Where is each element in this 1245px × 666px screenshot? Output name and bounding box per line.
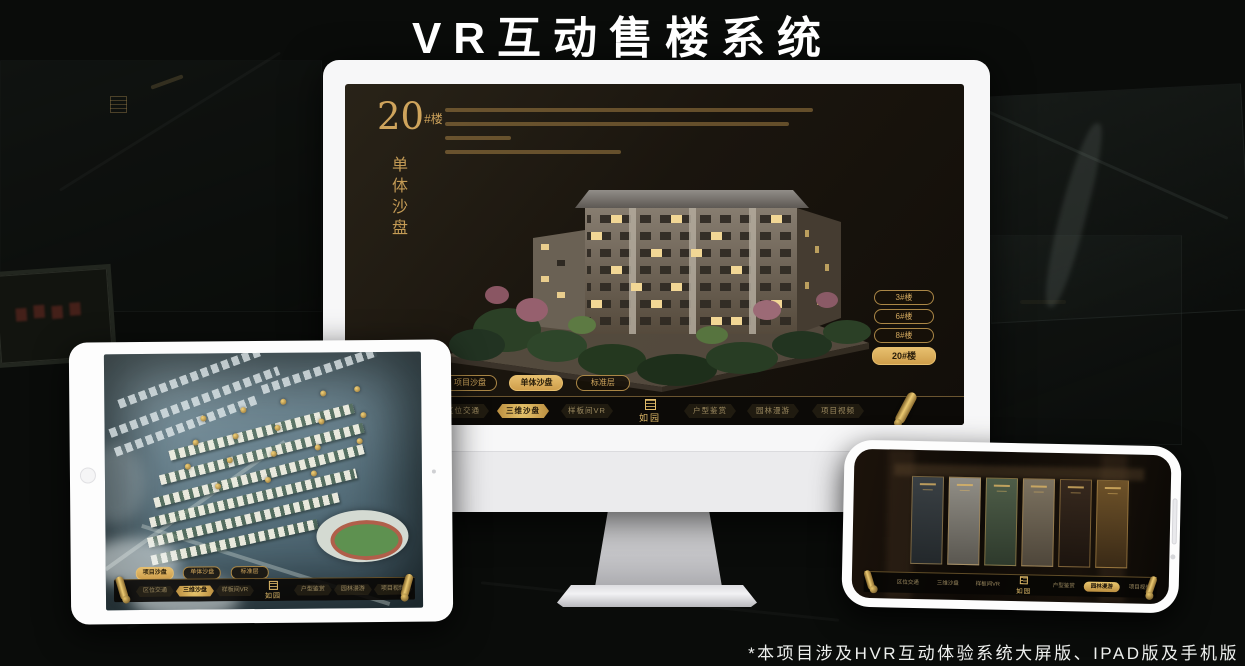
brand-logo-icon <box>645 399 656 410</box>
background-map-label <box>1020 300 1066 304</box>
footnote-text: *本项目涉及HVR互动体验系统大屏版、IPAD版及手机版 <box>748 639 1239 664</box>
monitor-stand-neck <box>595 512 722 587</box>
building-marker[interactable] <box>318 418 324 424</box>
building-heading: 20#楼 <box>377 98 443 136</box>
nav-item-showroom-vr[interactable]: 样板间VR <box>561 404 613 418</box>
monitor-stand-base <box>557 585 757 607</box>
tab-single-sandtable[interactable]: 单体沙盘 <box>509 375 563 391</box>
building-marker[interactable] <box>265 477 271 483</box>
nav-item-showroom-vr[interactable]: 样板间VR <box>970 579 1006 590</box>
scroll-icon[interactable] <box>115 576 129 601</box>
nav-item-floorplans[interactable]: 户型鉴赏 <box>684 404 736 418</box>
phone-camera-icon <box>1170 554 1175 559</box>
gallery-card[interactable] <box>947 477 981 566</box>
floor-button[interactable]: 3#楼 <box>874 290 934 305</box>
nav-item-sandtable[interactable]: 三维沙盘 <box>930 578 966 589</box>
building-marker[interactable] <box>357 438 363 444</box>
building-number: 20 <box>377 95 424 138</box>
brand-logo: 如园 <box>624 399 676 424</box>
building-marker[interactable] <box>200 415 206 421</box>
building-3d-model <box>437 160 877 392</box>
brand-logo-icon <box>268 581 277 590</box>
phone-screen: 区位交通 三维沙盘 样板间VR 如园 户型鉴赏 园林漫游 项目视频 <box>851 449 1171 605</box>
building-marker[interactable] <box>227 457 233 463</box>
gallery-card[interactable] <box>984 477 1018 566</box>
building-marker[interactable] <box>193 440 199 446</box>
brand-logo-text: 如园 <box>265 593 281 600</box>
nav-item-garden-tour[interactable]: 园林漫游 <box>1084 582 1120 593</box>
phone-side-slot <box>1172 498 1178 544</box>
background-gold-emblem <box>110 96 127 113</box>
stadium <box>316 510 408 563</box>
brand-logo-icon <box>1020 576 1028 584</box>
tablet-mode-tab-group: 项目沙盘 单体沙盘 标准层 <box>136 560 274 580</box>
building-marker[interactable] <box>311 471 317 477</box>
intro-paragraph-placeholder <box>445 108 813 164</box>
gallery-card[interactable] <box>1095 480 1129 569</box>
scroll-icon[interactable] <box>894 391 919 425</box>
building-unit: #楼 <box>424 112 443 126</box>
nav-item-location[interactable]: 区位交通 <box>890 577 926 588</box>
poster-canvas: VR互动售楼系统 20#楼 单体沙盘 <box>0 0 1245 666</box>
gallery-card[interactable] <box>1058 479 1092 568</box>
building-marker[interactable] <box>360 412 366 418</box>
nav-item-showroom-vr[interactable]: 样板间VR <box>216 585 254 596</box>
floor-button-group: 3#楼 6#楼 8#楼 20#楼 <box>874 290 936 369</box>
building-marker[interactable] <box>275 425 281 431</box>
mode-tab-group: 项目沙盘 单体沙盘 标准层 <box>443 372 638 391</box>
tab-standard-floor[interactable]: 标准层 <box>576 375 630 391</box>
brand-logo: 如园 <box>1004 576 1044 596</box>
building-marker[interactable] <box>315 444 321 450</box>
nav-item-floorplans[interactable]: 户型鉴赏 <box>294 584 332 595</box>
brand-logo-text: 如园 <box>639 413 661 423</box>
tablet-home-button[interactable] <box>80 467 96 483</box>
tablet-screen: 项目沙盘 单体沙盘 标准层 区位交通 三维沙盘 样板间VR 如园 户型鉴赏 园林… <box>104 352 423 611</box>
nav-item-floorplans[interactable]: 户型鉴赏 <box>1046 581 1082 592</box>
building-marker[interactable] <box>233 433 239 439</box>
building-marker[interactable] <box>215 483 221 489</box>
building-marker[interactable] <box>354 386 360 392</box>
tablet-bottom-nav: 区位交通 三维沙盘 样板间VR 如园 户型鉴赏 园林漫游 项目视频 <box>114 577 415 603</box>
cloud-overlay <box>104 444 145 525</box>
building-marker[interactable] <box>240 407 246 413</box>
brand-logo-text: 如园 <box>1016 588 1031 595</box>
page-title: VR互动售楼系统 <box>0 2 1245 66</box>
floor-button-active[interactable]: 20#楼 <box>872 347 936 365</box>
tablet-device: 项目沙盘 单体沙盘 标准层 区位交通 三维沙盘 样板间VR 如园 户型鉴赏 园林… <box>69 339 453 624</box>
nav-item-sandtable[interactable]: 三维沙盘 <box>176 585 214 596</box>
building-marker[interactable] <box>271 451 277 457</box>
building-marker[interactable] <box>280 399 286 405</box>
gallery-card[interactable] <box>1021 478 1055 567</box>
phone-device: 区位交通 三维沙盘 样板间VR 如园 户型鉴赏 园林漫游 项目视频 <box>841 439 1181 613</box>
scroll-icon[interactable] <box>863 569 875 590</box>
building-marker[interactable] <box>320 390 326 396</box>
building-marker[interactable] <box>185 464 191 470</box>
nav-item-garden-tour[interactable]: 园林漫游 <box>747 404 799 418</box>
brand-logo: 如园 <box>253 581 293 601</box>
nav-item-sandtable[interactable]: 三维沙盘 <box>497 404 549 418</box>
floor-button[interactable]: 8#楼 <box>874 328 934 343</box>
gallery-card[interactable] <box>910 476 944 565</box>
scroll-icon[interactable] <box>400 573 414 598</box>
building-subtitle: 单体沙盘 <box>385 156 409 240</box>
nav-item-project-video[interactable]: 项目视频 <box>812 404 864 418</box>
tablet-camera-icon <box>432 469 436 473</box>
nav-item-location[interactable]: 区位交通 <box>136 586 174 597</box>
nav-item-garden-tour[interactable]: 园林漫游 <box>334 584 372 595</box>
floor-button[interactable]: 6#楼 <box>874 309 934 324</box>
